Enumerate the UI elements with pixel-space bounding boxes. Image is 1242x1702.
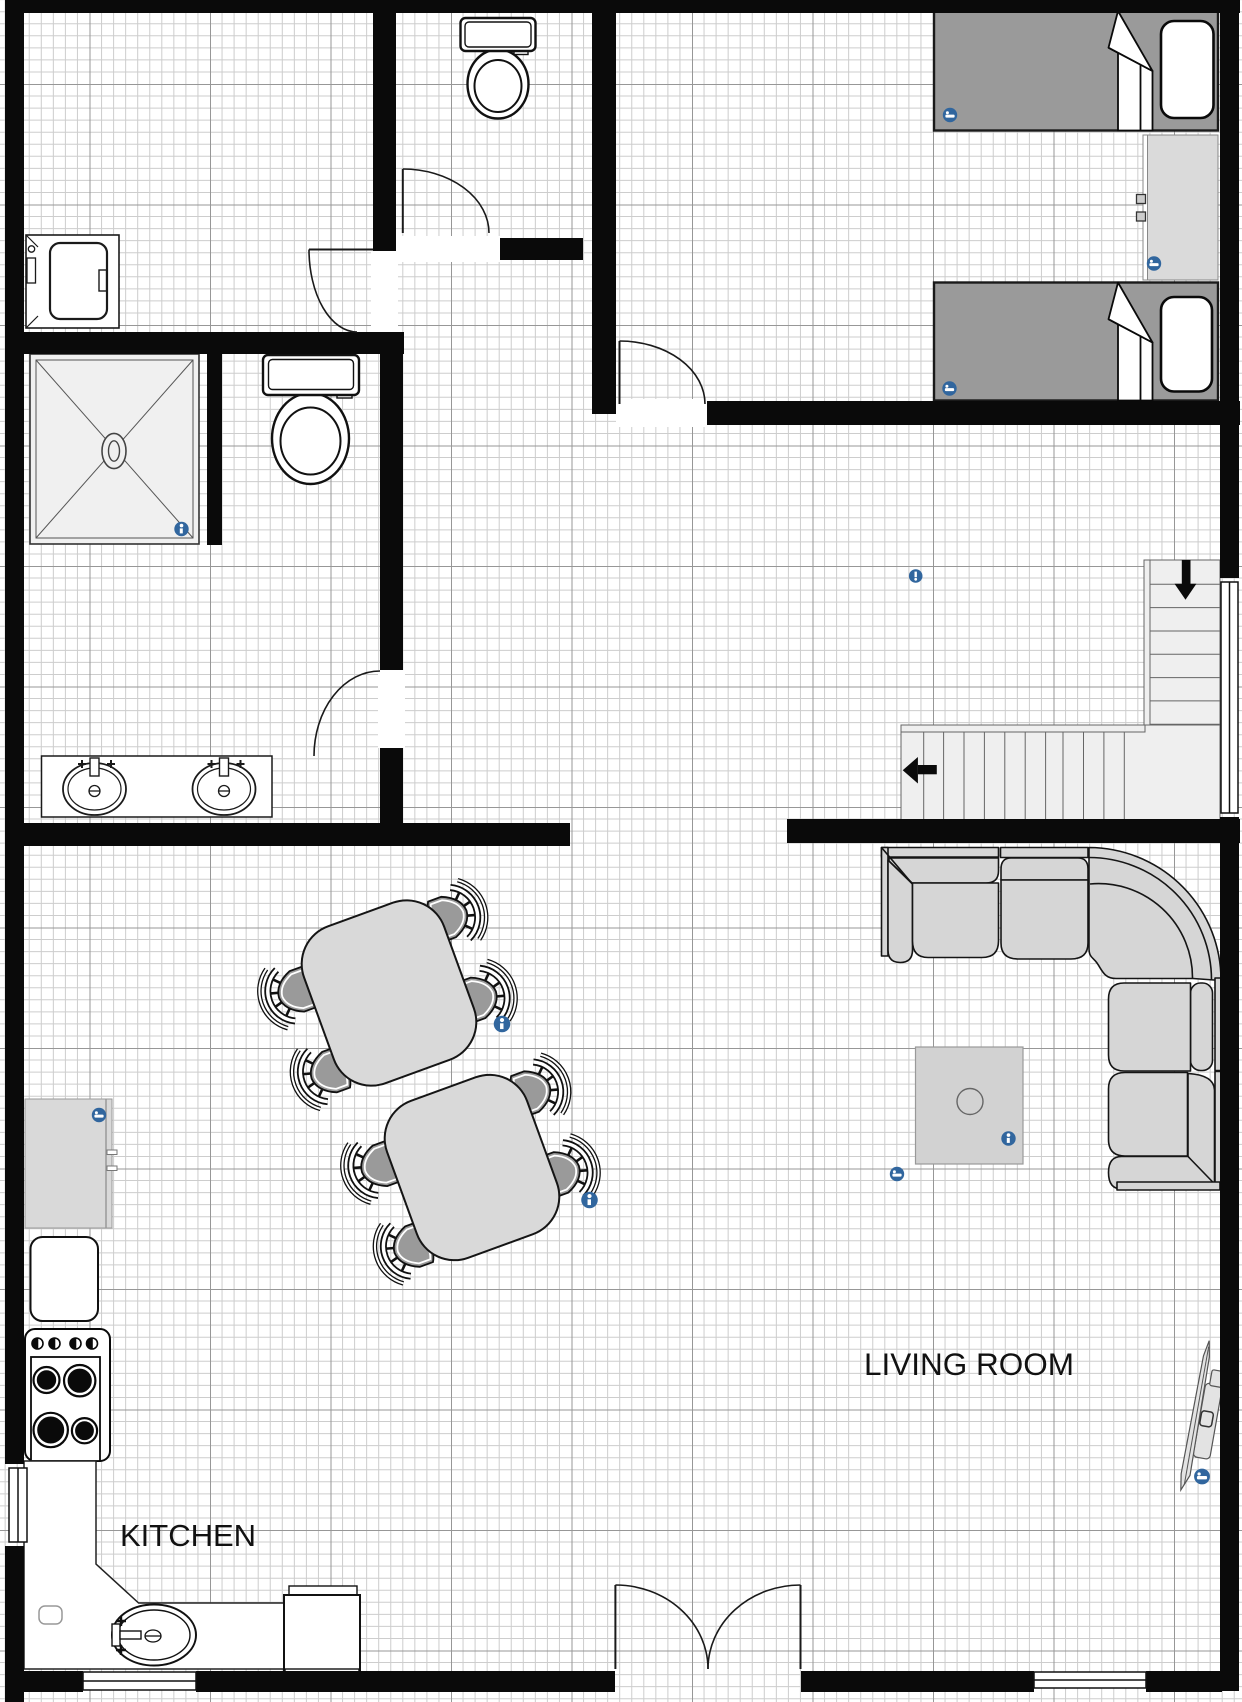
svg-text:LIVING ROOM: LIVING ROOM [864,1346,1074,1382]
svg-text:KITCHEN: KITCHEN [120,1518,256,1553]
